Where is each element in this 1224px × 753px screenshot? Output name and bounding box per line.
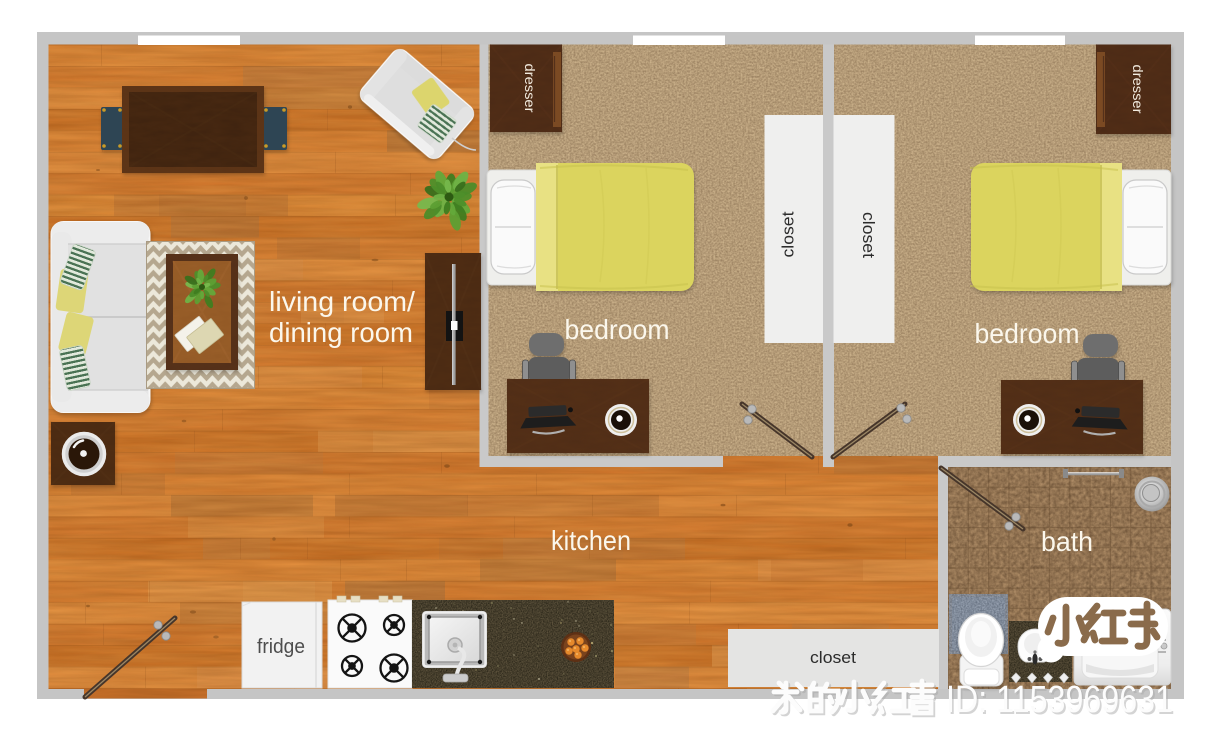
svg-text:fridge: fridge — [257, 636, 305, 658]
svg-text:bath: bath — [1041, 526, 1093, 557]
svg-text:living room/: living room/ — [269, 286, 415, 317]
svg-text:closet: closet — [810, 648, 856, 667]
svg-text:ID: 1153969631: ID: 1153969631 — [946, 679, 1173, 721]
svg-text:bedroom: bedroom — [975, 318, 1080, 349]
svg-text:closet: closet — [779, 211, 798, 257]
svg-text:dresser: dresser — [522, 64, 537, 114]
svg-text:closet: closet — [859, 212, 878, 258]
svg-text:dresser: dresser — [1130, 65, 1145, 115]
svg-text:kitchen: kitchen — [551, 525, 631, 556]
svg-text:bedroom: bedroom — [565, 314, 670, 345]
svg-text:dining room: dining room — [269, 317, 413, 348]
